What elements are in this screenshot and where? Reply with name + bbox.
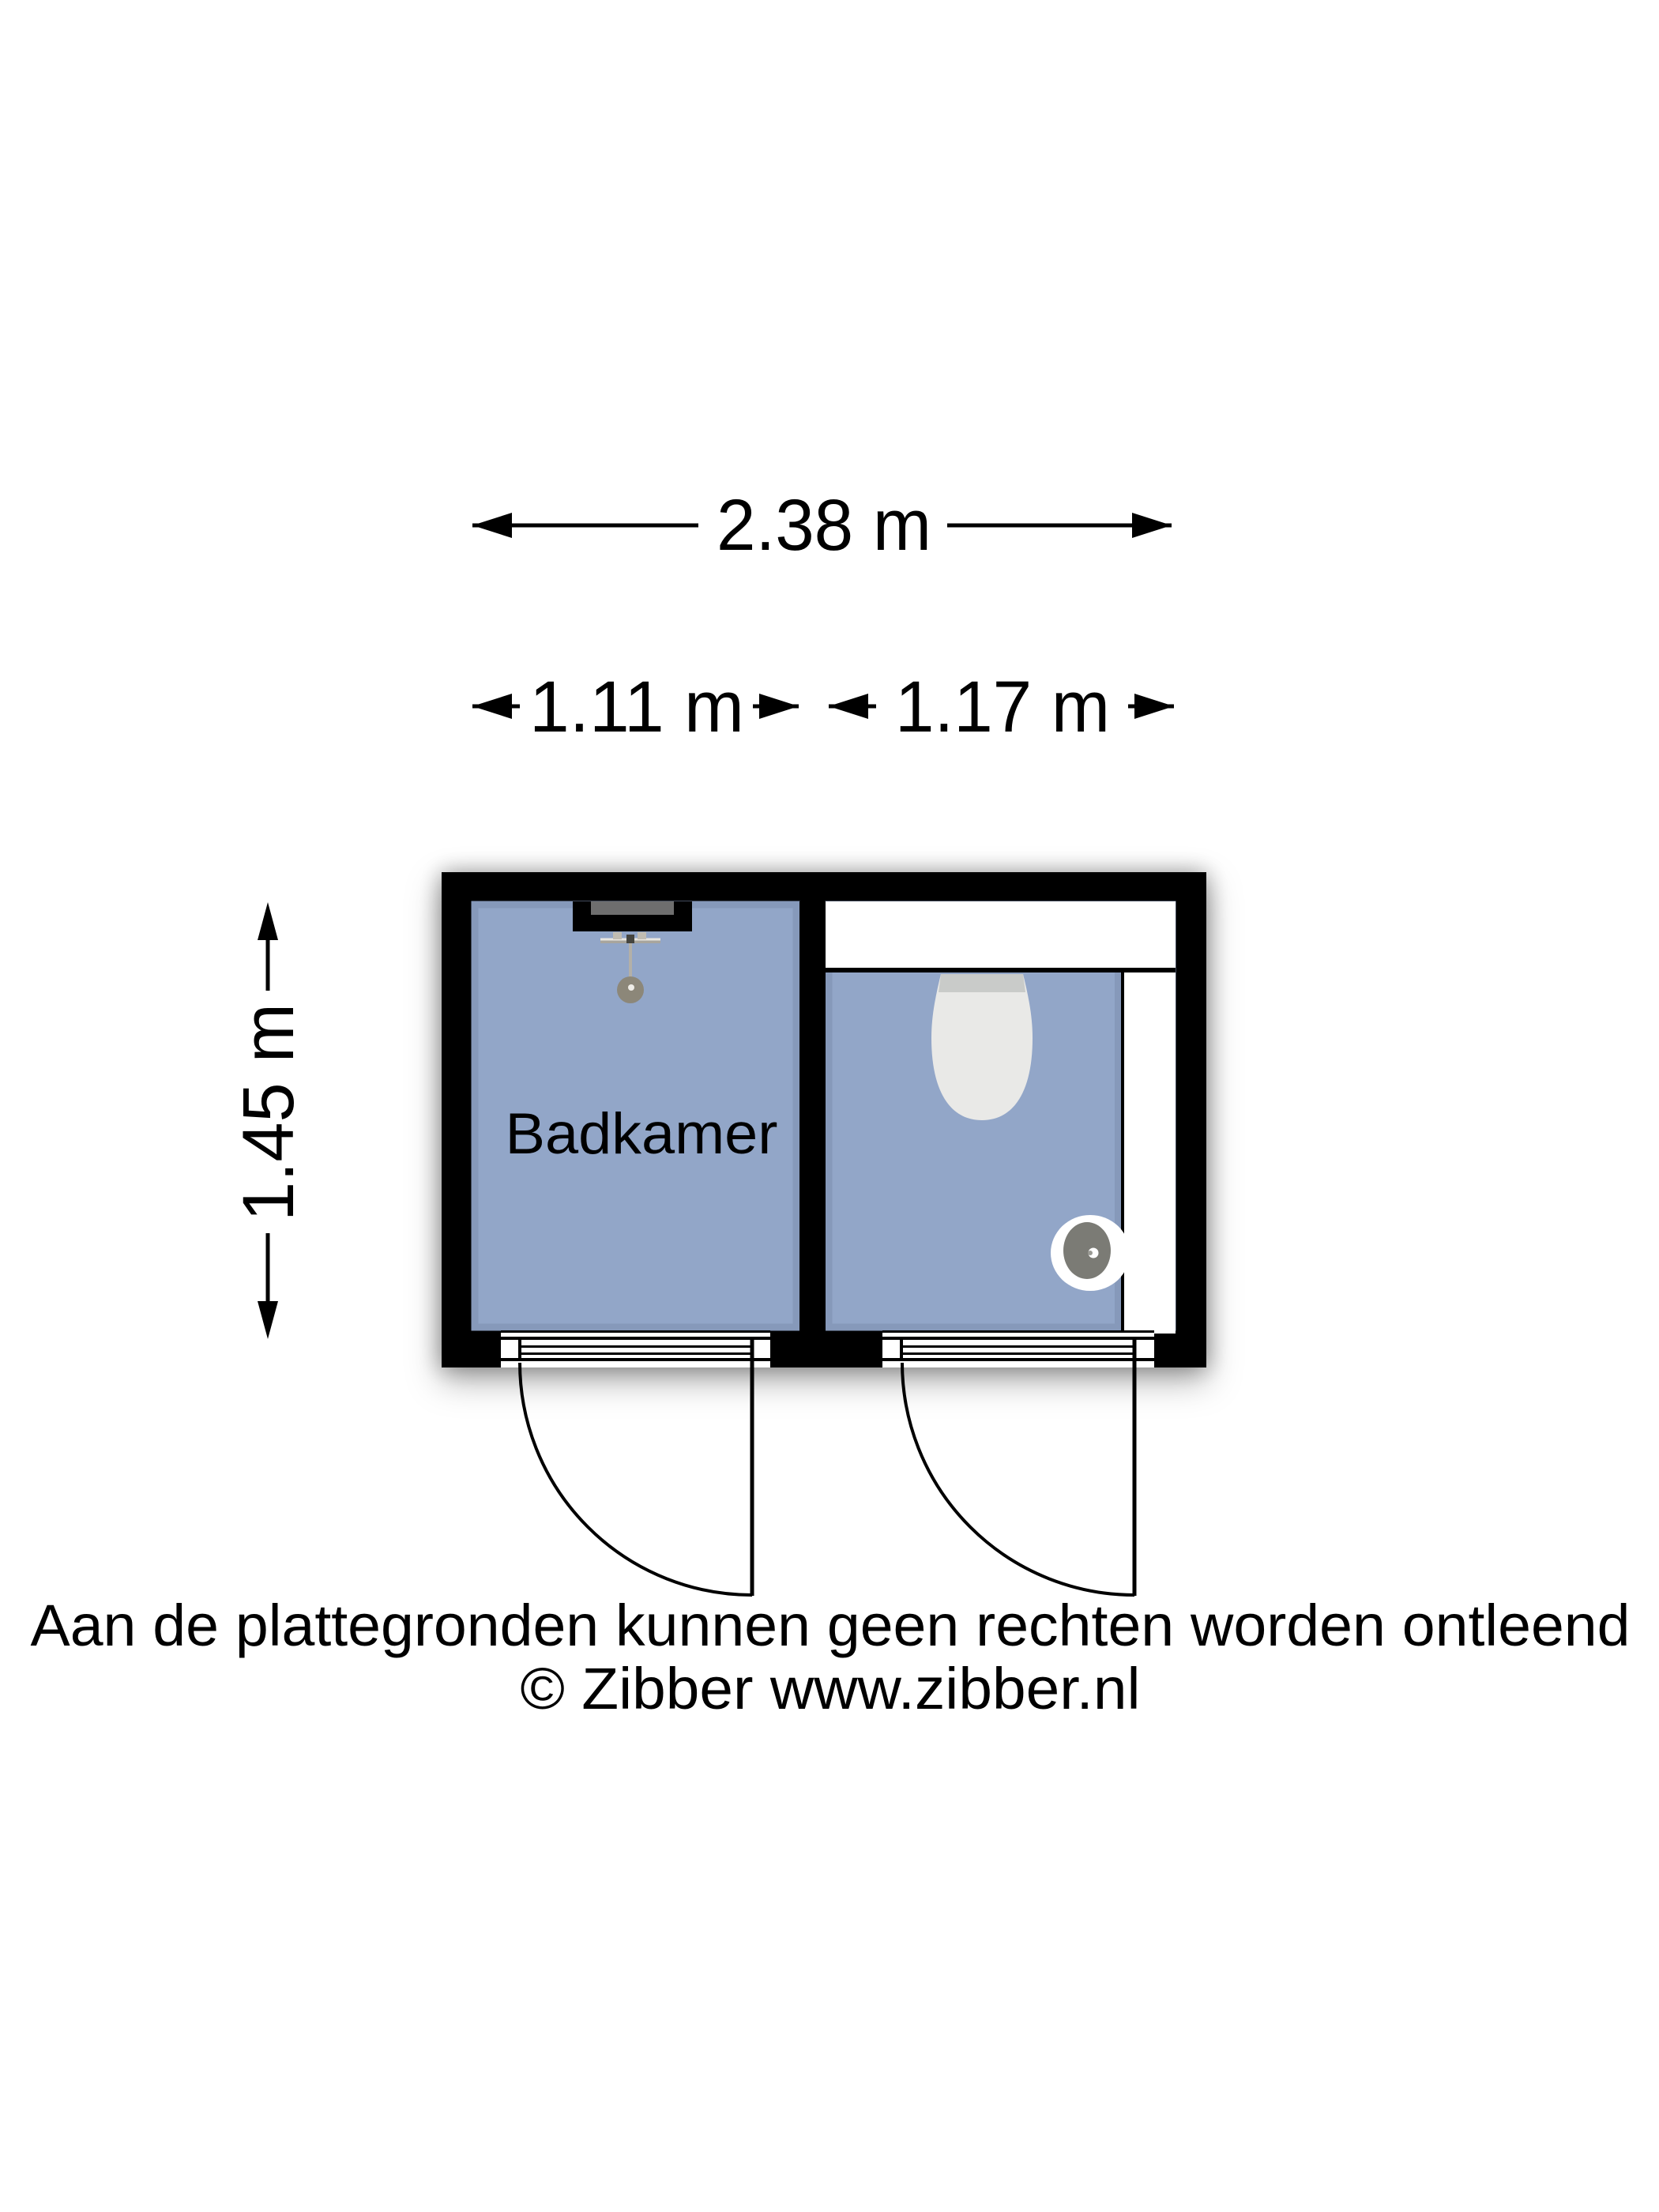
svg-text:1.11 m: 1.11 m [529, 667, 744, 747]
svg-text:1.45 m: 1.45 m [228, 1003, 309, 1221]
svg-text:2.38 m: 2.38 m [717, 485, 931, 566]
svg-text:1.17 m: 1.17 m [895, 667, 1110, 747]
svg-text:Badkamer: Badkamer [506, 1102, 778, 1166]
svg-text:Aan de plattegronden kunnen ge: Aan de plattegronden kunnen geen rechten… [31, 1593, 1631, 1658]
svg-text:© Zibber www.zibber.nl: © Zibber www.zibber.nl [521, 1656, 1141, 1721]
